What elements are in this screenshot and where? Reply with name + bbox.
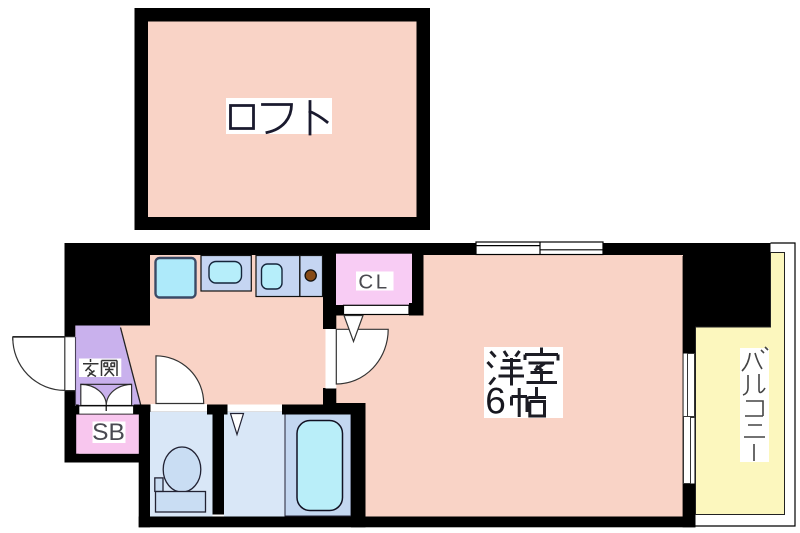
svg-text:SB: SB xyxy=(92,419,125,446)
svg-text:CL: CL xyxy=(358,271,389,294)
svg-text:6: 6 xyxy=(485,381,506,422)
